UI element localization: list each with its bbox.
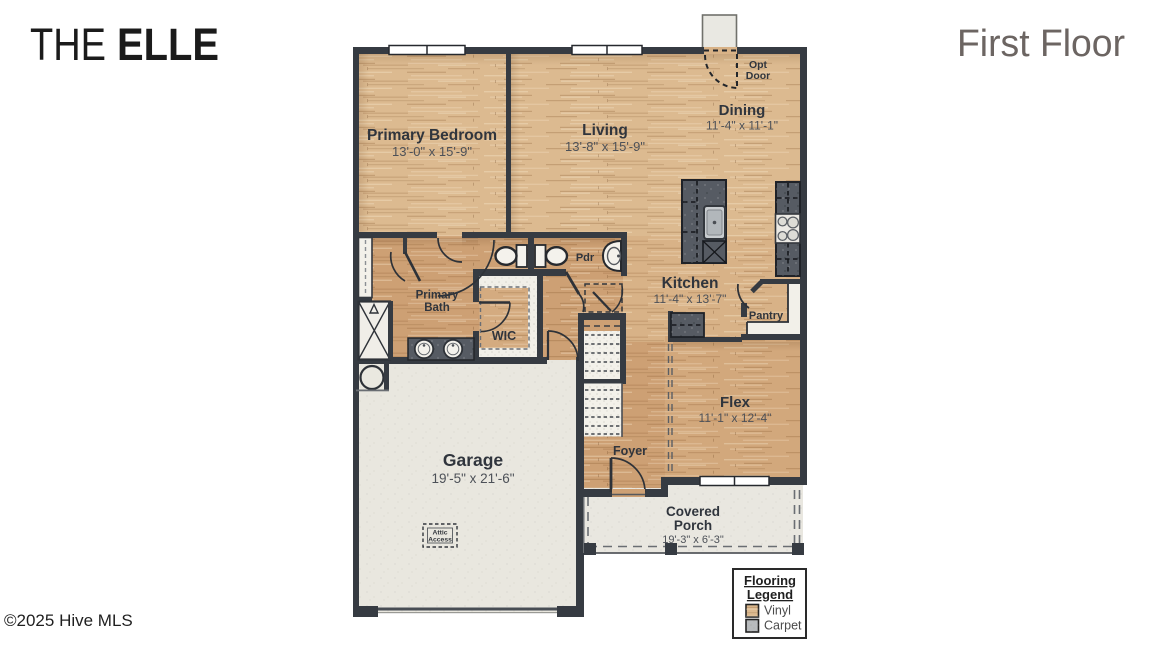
svg-text:Flex: Flex	[720, 394, 751, 411]
svg-text:19'-5" x 21'-6": 19'-5" x 21'-6"	[431, 471, 514, 486]
svg-text:©2025 Hive MLS: ©2025 Hive MLS	[4, 611, 133, 630]
svg-text:Pdr: Pdr	[576, 252, 595, 264]
svg-text:Dining: Dining	[719, 102, 766, 119]
svg-text:Carpet: Carpet	[764, 619, 802, 633]
svg-text:19'-3" x 6'-3": 19'-3" x 6'-3"	[662, 534, 724, 546]
svg-text:Attic: Attic	[432, 530, 447, 537]
svg-text:13'-0" x 15'-9": 13'-0" x 15'-9"	[392, 144, 472, 159]
svg-text:Vinyl: Vinyl	[764, 604, 791, 618]
svg-text:13'-8" x 15'-9": 13'-8" x 15'-9"	[565, 139, 645, 154]
svg-text:Kitchen: Kitchen	[662, 275, 719, 292]
svg-text:Access: Access	[428, 537, 452, 544]
svg-text:ELLE: ELLE	[117, 19, 219, 70]
svg-text:Bath: Bath	[424, 302, 450, 314]
svg-text:WIC: WIC	[492, 329, 516, 343]
svg-text:Door: Door	[746, 70, 771, 82]
svg-text:Primary Bedroom: Primary Bedroom	[367, 127, 497, 144]
svg-text:Covered: Covered	[666, 504, 720, 519]
svg-text:Foyer: Foyer	[613, 444, 647, 458]
svg-text:11'-4" x 11'-1": 11'-4" x 11'-1"	[706, 119, 778, 133]
svg-text:Living: Living	[582, 122, 628, 139]
svg-text:Garage: Garage	[443, 450, 504, 470]
svg-text:11'-1" x 12'-4": 11'-1" x 12'-4"	[699, 411, 772, 425]
svg-text:First Floor: First Floor	[957, 23, 1125, 65]
svg-text:Primary: Primary	[416, 290, 459, 302]
svg-text:Legend: Legend	[747, 587, 793, 602]
svg-text:Porch: Porch	[674, 518, 712, 533]
svg-text:Pantry: Pantry	[749, 310, 784, 322]
svg-text:11'-4" x 13'-7": 11'-4" x 13'-7"	[654, 292, 727, 306]
svg-text:Flooring: Flooring	[744, 573, 796, 588]
svg-text:THE: THE	[30, 19, 106, 70]
